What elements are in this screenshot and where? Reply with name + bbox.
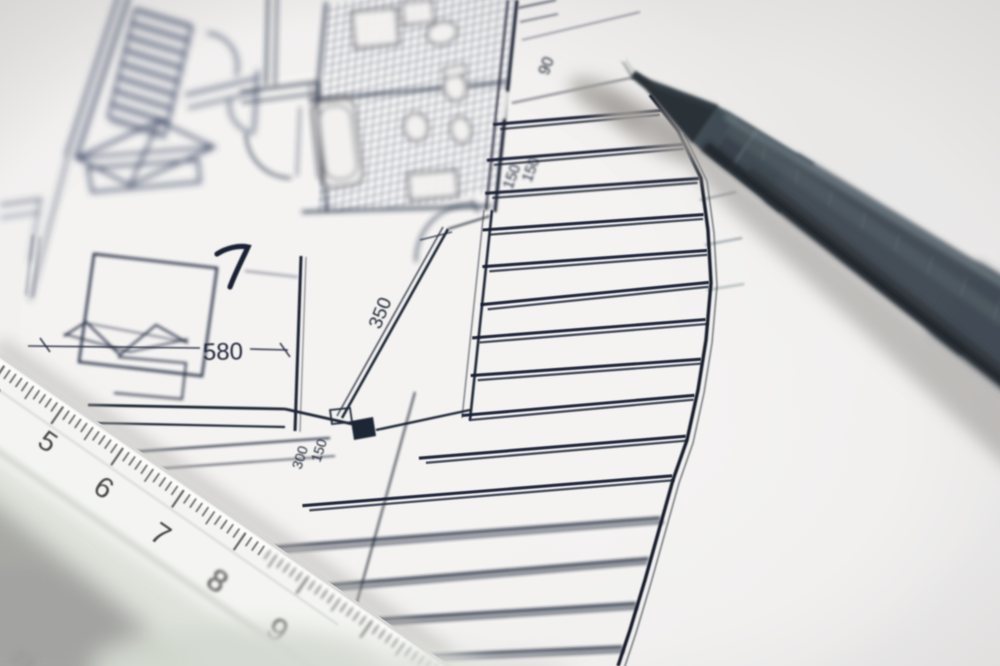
svg-text:580: 580 [203, 338, 244, 366]
